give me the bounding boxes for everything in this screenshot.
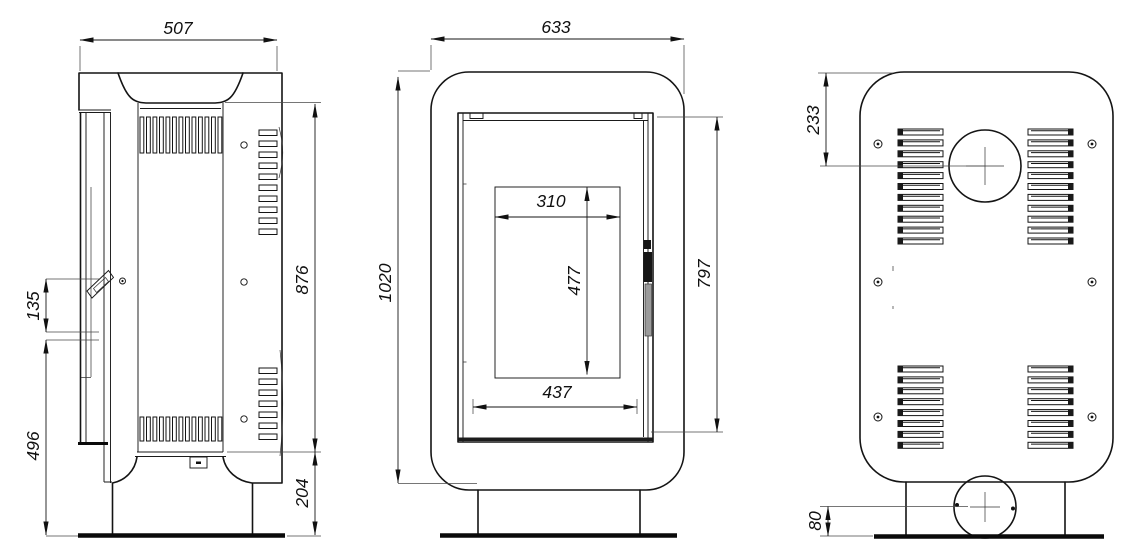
vent-slot-cap bbox=[898, 151, 903, 157]
vent-slot bbox=[259, 412, 277, 418]
vent-slot bbox=[898, 173, 943, 179]
vent-slot bbox=[1028, 194, 1073, 200]
vent-slot bbox=[259, 390, 277, 396]
side-top-saddle bbox=[118, 73, 243, 103]
side-firebox-edges bbox=[138, 103, 223, 452]
side-rear-vent-grille-lower bbox=[259, 368, 277, 440]
vent-slot bbox=[179, 417, 183, 441]
vent-slot bbox=[259, 185, 277, 191]
vent-slot bbox=[259, 434, 277, 440]
vent-slot bbox=[1028, 399, 1073, 405]
vent-slot bbox=[218, 417, 222, 441]
back-view: 233 80 bbox=[803, 72, 1113, 538]
vent-slot bbox=[898, 431, 943, 437]
vent-slot bbox=[218, 117, 222, 153]
dim-label-front-total-height: 1020 bbox=[375, 263, 395, 302]
back-vent-grille-lower-right bbox=[1028, 366, 1073, 448]
front-pedestal bbox=[478, 490, 640, 535]
side-top-vent-grille bbox=[140, 117, 222, 153]
dim-label-side-body-height: 876 bbox=[292, 265, 312, 294]
side-rear-vent-grille-upper bbox=[259, 130, 277, 235]
vent-slot bbox=[153, 417, 157, 441]
side-damper-slot bbox=[196, 462, 201, 465]
dim-label-front-firebox-width: 437 bbox=[542, 382, 572, 402]
vent-slot bbox=[205, 417, 209, 441]
screw-hole-dot bbox=[877, 143, 880, 146]
vent-slot-cap bbox=[898, 431, 903, 437]
vent-slot bbox=[898, 216, 943, 222]
vent-slot-cap bbox=[1068, 399, 1073, 405]
side-screw-hole bbox=[241, 279, 247, 285]
vent-slot bbox=[259, 196, 277, 202]
front-extension-lines bbox=[398, 45, 723, 484]
vent-slot-cap bbox=[1068, 377, 1073, 383]
front-door-top-hinges bbox=[470, 113, 642, 119]
vent-slot bbox=[1028, 151, 1073, 157]
vent-slot-cap bbox=[1068, 421, 1073, 427]
vent-slot-cap bbox=[1068, 184, 1073, 190]
front-view: 633 1020 797 310 477 437 bbox=[375, 17, 723, 536]
side-screw-hole bbox=[241, 416, 247, 422]
vent-slot bbox=[259, 152, 277, 158]
vent-slot bbox=[898, 238, 943, 244]
vent-slot-cap bbox=[1068, 431, 1073, 437]
vent-slot bbox=[1028, 442, 1073, 448]
side-door-frame-lines bbox=[86, 112, 112, 483]
vent-slot bbox=[212, 117, 216, 153]
vent-slot bbox=[1028, 205, 1073, 211]
vent-slot bbox=[259, 174, 277, 180]
vent-slot-cap bbox=[1068, 173, 1073, 179]
vent-slot-cap bbox=[898, 421, 903, 427]
air-inlet-cross bbox=[970, 492, 1000, 522]
vent-slot-cap bbox=[1068, 238, 1073, 244]
screw-hole-dot bbox=[1091, 143, 1094, 146]
dim-label-side-width: 507 bbox=[163, 18, 193, 38]
vent-slot bbox=[160, 417, 164, 441]
vent-slot-cap bbox=[898, 238, 903, 244]
vent-slot bbox=[173, 117, 177, 153]
vent-slot bbox=[166, 417, 170, 441]
vent-slot bbox=[179, 117, 183, 153]
door-latch bbox=[644, 252, 653, 282]
vent-slot bbox=[898, 129, 943, 135]
vent-slot bbox=[898, 162, 943, 168]
vent-slot bbox=[1028, 410, 1073, 416]
vent-slot bbox=[259, 401, 277, 407]
screw-hole-dot bbox=[877, 416, 880, 419]
vent-slot-cap bbox=[898, 194, 903, 200]
vent-slot bbox=[205, 117, 209, 153]
vent-slot-cap bbox=[898, 227, 903, 233]
vent-slot bbox=[898, 399, 943, 405]
vent-slot-cap bbox=[898, 216, 903, 222]
door-handle-bar bbox=[645, 284, 652, 336]
vent-slot bbox=[898, 194, 943, 200]
vent-slot bbox=[1028, 421, 1073, 427]
vent-slot-cap bbox=[898, 162, 903, 168]
dim-label-front-glass-height: 477 bbox=[564, 265, 584, 295]
side-bottom-vent-grille bbox=[140, 417, 222, 441]
front-hinge-ticks bbox=[463, 184, 467, 362]
vent-slot bbox=[898, 205, 943, 211]
dim-label-flue-offset: 233 bbox=[803, 105, 823, 135]
dim-label-front-glass-width: 310 bbox=[536, 191, 565, 211]
vent-slot-cap bbox=[898, 442, 903, 448]
vent-slot bbox=[1028, 140, 1073, 146]
vent-slot bbox=[259, 141, 277, 147]
back-vent-grille-upper-right bbox=[1028, 129, 1073, 244]
vent-slot-cap bbox=[898, 410, 903, 416]
vent-slot bbox=[898, 377, 943, 383]
vent-slot-cap bbox=[1068, 410, 1073, 416]
vent-slot-cap bbox=[1068, 151, 1073, 157]
back-vent-grille-upper-left bbox=[898, 129, 943, 244]
vent-slot-cap bbox=[898, 173, 903, 179]
dim-label-inlet-height: 80 bbox=[805, 511, 825, 531]
vent-slot bbox=[199, 117, 203, 153]
vent-slot bbox=[898, 227, 943, 233]
vent-slot-cap bbox=[1068, 129, 1073, 135]
vent-slot bbox=[259, 379, 277, 385]
vent-slot bbox=[160, 117, 164, 153]
vent-slot bbox=[259, 207, 277, 213]
side-outline bbox=[79, 73, 282, 535]
vent-slot bbox=[898, 140, 943, 146]
vent-slot bbox=[898, 366, 943, 372]
vent-slot-cap bbox=[898, 129, 903, 135]
vent-slot bbox=[1028, 227, 1073, 233]
dim-label-side-base-height: 204 bbox=[292, 478, 312, 508]
vent-slot bbox=[1028, 388, 1073, 394]
vent-slot-cap bbox=[1068, 366, 1073, 372]
vent-slot-cap bbox=[898, 399, 903, 405]
vent-slot bbox=[1028, 431, 1073, 437]
screw-hole-dot bbox=[877, 281, 880, 284]
front-door-bottom-band bbox=[459, 438, 653, 442]
front-glass-opening bbox=[495, 187, 620, 378]
screw-hole-dot bbox=[1091, 416, 1094, 419]
vent-slot-cap bbox=[898, 388, 903, 394]
vent-slot-cap bbox=[898, 205, 903, 211]
vent-slot-cap bbox=[1068, 205, 1073, 211]
vent-slot bbox=[1028, 366, 1073, 372]
vent-slot bbox=[153, 117, 157, 153]
vent-slot-cap bbox=[898, 366, 903, 372]
vent-slot bbox=[147, 417, 151, 441]
vent-slot bbox=[898, 442, 943, 448]
vent-slot bbox=[1028, 162, 1073, 168]
vent-slot bbox=[898, 388, 943, 394]
vent-slot bbox=[186, 117, 190, 153]
vent-slot bbox=[1028, 129, 1073, 135]
vent-slot bbox=[898, 410, 943, 416]
vent-slot bbox=[898, 421, 943, 427]
vent-slot bbox=[259, 163, 277, 169]
vent-slot-cap bbox=[1068, 140, 1073, 146]
screw-hole-dot bbox=[1091, 281, 1094, 284]
vent-slot-cap bbox=[1068, 442, 1073, 448]
vent-slot bbox=[147, 117, 151, 153]
side-pedestal-left bbox=[113, 457, 138, 535]
vent-slot-cap bbox=[1068, 216, 1073, 222]
door-latch-upper bbox=[644, 240, 651, 249]
vent-slot bbox=[259, 423, 277, 429]
vent-slot bbox=[898, 151, 943, 157]
side-screw-hole bbox=[241, 142, 247, 148]
side-firebox-bottom-lines bbox=[135, 452, 226, 457]
vent-slot-cap bbox=[898, 184, 903, 190]
vent-slot bbox=[192, 117, 196, 153]
vent-slot bbox=[259, 368, 277, 374]
vent-slot bbox=[259, 229, 277, 235]
vent-slot bbox=[140, 117, 144, 153]
vent-slot-cap bbox=[1068, 194, 1073, 200]
vent-slot-cap bbox=[1068, 388, 1073, 394]
vent-slot bbox=[140, 417, 144, 441]
dim-label-front-door-height: 797 bbox=[694, 258, 714, 288]
vent-slot bbox=[259, 218, 277, 224]
side-pedestal-right-curve bbox=[223, 457, 252, 483]
vent-slot bbox=[166, 117, 170, 153]
dim-label-handle-floor-height: 496 bbox=[23, 431, 43, 460]
vent-slot bbox=[898, 184, 943, 190]
dim-label-handle-span: 135 bbox=[23, 291, 43, 320]
vent-slot-cap bbox=[898, 377, 903, 383]
vent-slot bbox=[259, 130, 277, 136]
air-inlet-bolt bbox=[1011, 507, 1015, 511]
stove-technical-drawing: 507 876 204 135 496 633 1020 797 310 477… bbox=[0, 0, 1137, 559]
back-pedestal bbox=[906, 482, 1065, 536]
vent-slot bbox=[1028, 184, 1073, 190]
vent-slot-cap bbox=[1068, 162, 1073, 168]
technical-drawing-canvas: 507 876 204 135 496 633 1020 797 310 477… bbox=[0, 0, 1137, 559]
side-view: 507 876 204 135 496 bbox=[23, 18, 321, 536]
vent-slot-cap bbox=[898, 140, 903, 146]
vent-slot-cap bbox=[1068, 227, 1073, 233]
vent-slot bbox=[1028, 173, 1073, 179]
vent-slot bbox=[199, 417, 203, 441]
vent-slot bbox=[212, 417, 216, 441]
vent-slot bbox=[1028, 377, 1073, 383]
side-door-top-edge bbox=[79, 110, 111, 113]
vent-slot bbox=[1028, 216, 1073, 222]
dim-label-front-width: 633 bbox=[541, 17, 570, 37]
vent-slot bbox=[1028, 238, 1073, 244]
vent-slot bbox=[186, 417, 190, 441]
back-vent-grille-lower-left bbox=[898, 366, 943, 448]
vent-slot bbox=[192, 417, 196, 441]
handle-pivot-dot bbox=[121, 280, 123, 282]
vent-slot bbox=[173, 417, 177, 441]
